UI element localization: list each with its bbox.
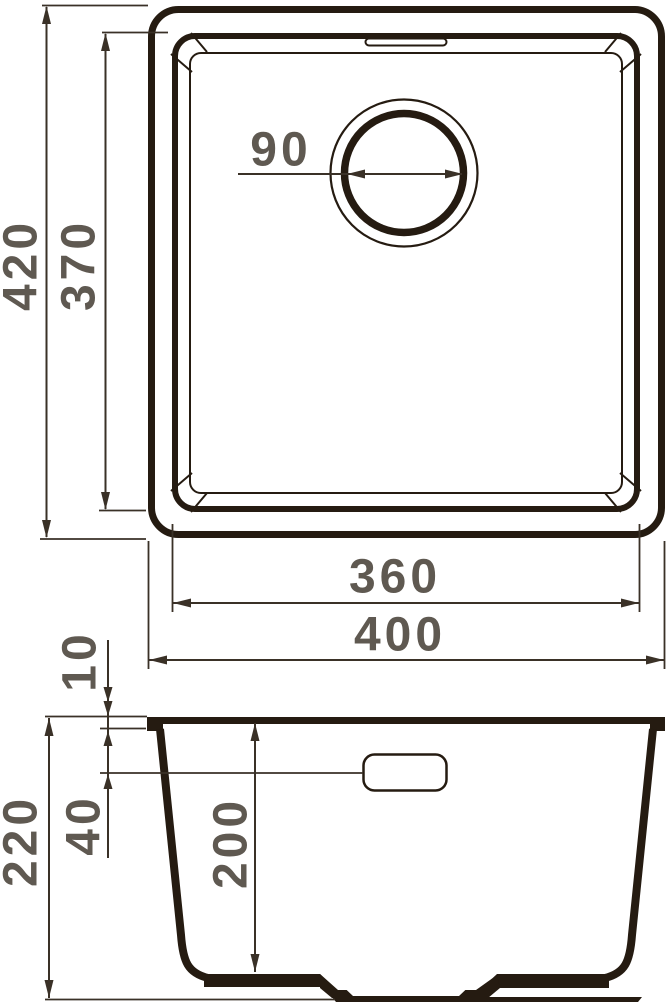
- sink-dimensional-drawing: 420 370 90 360 400: [0, 0, 668, 1003]
- dim-40-arrow-top: [104, 731, 113, 746]
- dim-label-200: 200: [205, 797, 258, 889]
- bowl-floor-edge: [190, 53, 622, 493]
- dim-420-arrow-top: [42, 6, 51, 24]
- dim-360-arrow-left: [173, 599, 191, 608]
- dim-label-370: 370: [53, 219, 106, 311]
- drain-recess-slit: [336, 980, 474, 985]
- bowl-opening-edge: [175, 36, 637, 509]
- dim-40-arrow-bottom: [104, 774, 113, 789]
- overflow-slot-top-view: [366, 39, 447, 46]
- dim-label-10: 10: [54, 630, 107, 691]
- bowl-bottom-right-band: [482, 974, 609, 988]
- dim-360-arrow-right: [621, 599, 639, 608]
- rim-left-lip: [147, 717, 163, 731]
- dim-370-arrow-bottom: [101, 492, 110, 510]
- dim-label-420: 420: [0, 219, 48, 311]
- sink-top-view: [152, 10, 662, 535]
- dim-label-220: 220: [0, 795, 48, 887]
- dim-200-arrow-top: [251, 723, 260, 741]
- rim-right-lip: [650, 717, 665, 731]
- dim-200-arrow-bottom: [251, 954, 260, 972]
- overflow-slot-side-view: [364, 755, 447, 791]
- dim-370-extension-lines: [99, 33, 168, 511]
- bowl-bottom-left-band: [204, 974, 334, 987]
- dim-10-arrow-lower: [104, 701, 113, 716]
- dim-90-arrow-left: [347, 170, 365, 179]
- dim-label-90: 90: [250, 124, 311, 177]
- bottom-exterior-bar: [332, 997, 642, 1002]
- technical-drawing-page: 420 370 90 360 400: [0, 0, 668, 1003]
- dim-label-40: 40: [58, 794, 111, 855]
- outer-rim-edge: [152, 10, 662, 535]
- dim-400-arrow-right: [646, 656, 664, 665]
- bowl-corner-fillet-lines: [171, 33, 641, 512]
- top-view-dimensions: 420 370 90 360 400: [0, 6, 665, 670]
- dim-400-arrow-left: [149, 656, 167, 665]
- drain-recess-cavity: [344, 988, 468, 997]
- dim-label-400: 400: [354, 609, 446, 662]
- dim-label-360: 360: [349, 551, 441, 604]
- bowl-left-wall: [160, 729, 208, 978]
- dim-220-arrow-top: [45, 718, 54, 736]
- dim-420-arrow-bottom: [42, 520, 51, 538]
- dim-370-arrow-top: [101, 33, 110, 51]
- bowl-right-wall: [605, 729, 653, 978]
- dim-220-arrow-bottom: [45, 980, 54, 998]
